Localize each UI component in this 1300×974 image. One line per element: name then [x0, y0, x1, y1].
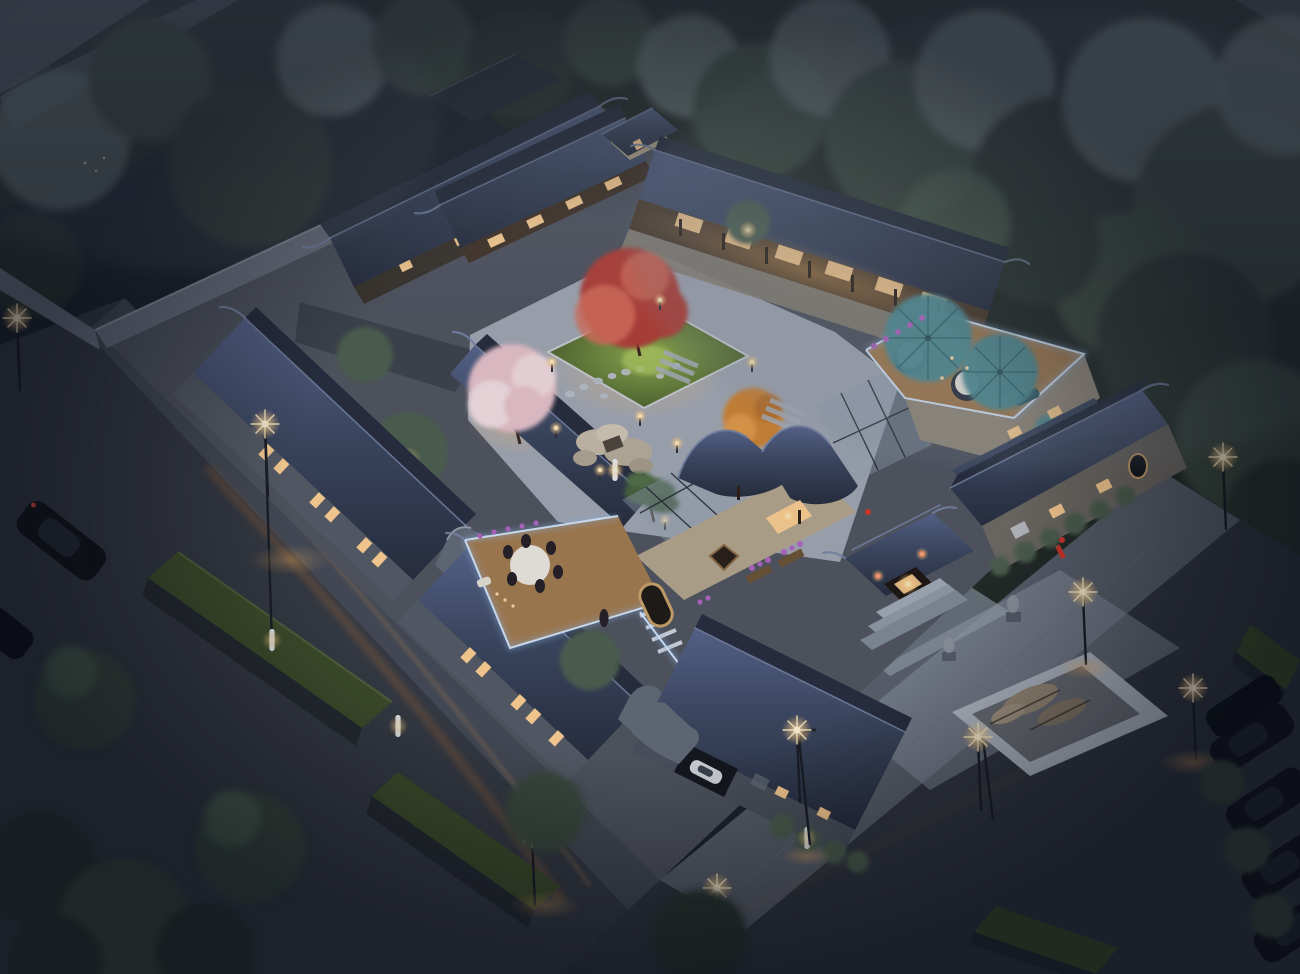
siheyuan-aerial-rendering — [0, 0, 1300, 974]
rendering-stage — [0, 0, 1300, 974]
blue-grade — [0, 0, 1300, 974]
atmosphere — [0, 0, 1300, 974]
